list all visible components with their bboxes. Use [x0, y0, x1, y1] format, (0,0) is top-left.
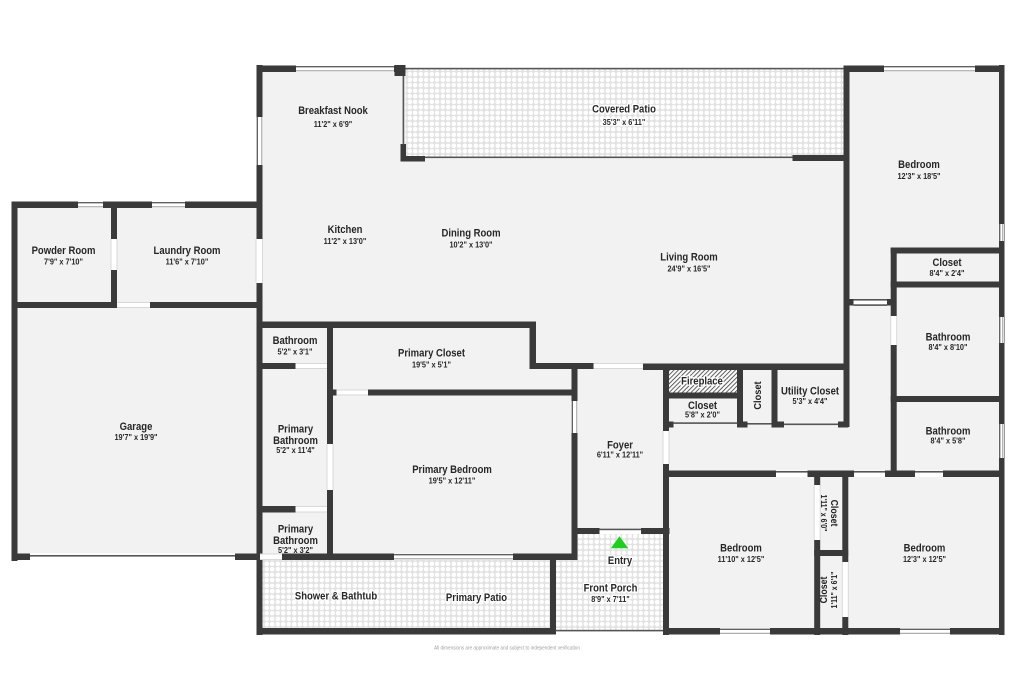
svg-text:12'3" x 12'5": 12'3" x 12'5": [903, 555, 946, 564]
svg-text:Garage: Garage: [120, 421, 153, 433]
svg-text:19'5" x 12'11": 19'5" x 12'11": [429, 476, 476, 485]
svg-text:Primary Patio: Primary Patio: [446, 592, 507, 604]
svg-text:Bedroom: Bedroom: [904, 543, 946, 555]
svg-text:5'2" x 3'1": 5'2" x 3'1": [278, 347, 313, 356]
svg-text:Dining Room: Dining Room: [441, 228, 500, 240]
svg-text:11'6" x 7'10": 11'6" x 7'10": [166, 257, 209, 266]
svg-text:12'3" x 18'5": 12'3" x 18'5": [897, 172, 940, 181]
svg-text:Bedroom: Bedroom: [898, 159, 940, 171]
svg-text:Primary: Primary: [278, 424, 314, 436]
svg-text:Closet: Closet: [932, 257, 962, 269]
svg-text:All dimensions are approximate: All dimensions are approximate and subje…: [434, 646, 580, 652]
svg-text:8'9" x 7'11": 8'9" x 7'11": [591, 595, 630, 604]
svg-text:8'4" x 2'4": 8'4" x 2'4": [930, 269, 965, 278]
svg-text:7'9" x 7'10": 7'9" x 7'10": [44, 257, 83, 266]
svg-text:Primary: Primary: [278, 524, 314, 536]
svg-text:5'3" x 4'4": 5'3" x 4'4": [793, 397, 828, 406]
svg-text:Entry: Entry: [608, 555, 633, 567]
svg-text:Bathroom: Bathroom: [273, 335, 318, 347]
svg-text:8'4" x 8'10": 8'4" x 8'10": [929, 343, 968, 352]
svg-text:Closet: Closet: [753, 381, 765, 410]
svg-text:Utility Closet: Utility Closet: [781, 386, 840, 398]
svg-text:Closet: Closet: [817, 576, 829, 604]
svg-text:11'2" x 13'0": 11'2" x 13'0": [324, 237, 367, 246]
svg-text:Shower & Bathtub: Shower & Bathtub: [295, 591, 377, 603]
svg-text:Closet: Closet: [829, 500, 841, 528]
svg-text:Front Porch: Front Porch: [584, 583, 638, 595]
svg-text:Fireplace: Fireplace: [681, 376, 723, 388]
svg-text:8'4" x 5'8": 8'4" x 5'8": [931, 436, 966, 445]
svg-text:Kitchen: Kitchen: [328, 224, 363, 236]
svg-text:Bedroom: Bedroom: [720, 543, 762, 555]
svg-text:5'2" x 11'4": 5'2" x 11'4": [276, 446, 315, 455]
svg-text:1'11" x 6'0": 1'11" x 6'0": [819, 495, 829, 532]
svg-text:5'2" x 3'2": 5'2" x 3'2": [278, 546, 313, 555]
svg-text:6'11" x 12'11": 6'11" x 12'11": [597, 450, 644, 459]
svg-text:Primary Bedroom: Primary Bedroom: [412, 464, 492, 476]
svg-text:Laundry Room: Laundry Room: [154, 245, 221, 257]
svg-text:5'8" x 2'0": 5'8" x 2'0": [685, 410, 720, 419]
svg-text:Powder Room: Powder Room: [32, 245, 96, 257]
svg-text:19'7" x 19'9": 19'7" x 19'9": [114, 433, 157, 442]
svg-text:Breakfast Nook: Breakfast Nook: [298, 105, 368, 117]
svg-text:24'9" x 16'5": 24'9" x 16'5": [667, 264, 710, 273]
svg-text:1'11" x 6'1": 1'11" x 6'1": [830, 571, 840, 608]
svg-text:Living Room: Living Room: [660, 252, 717, 264]
svg-text:11'10" x 12'5": 11'10" x 12'5": [718, 555, 765, 564]
svg-text:19'5" x 5'1": 19'5" x 5'1": [412, 360, 451, 369]
svg-text:11'2" x 6'9": 11'2" x 6'9": [314, 120, 353, 129]
svg-text:10'2" x 13'0": 10'2" x 13'0": [449, 240, 492, 249]
svg-text:Covered Patio: Covered Patio: [592, 104, 656, 116]
svg-text:35'3" x 6'11": 35'3" x 6'11": [603, 118, 646, 127]
svg-text:Primary Closet: Primary Closet: [398, 348, 466, 360]
